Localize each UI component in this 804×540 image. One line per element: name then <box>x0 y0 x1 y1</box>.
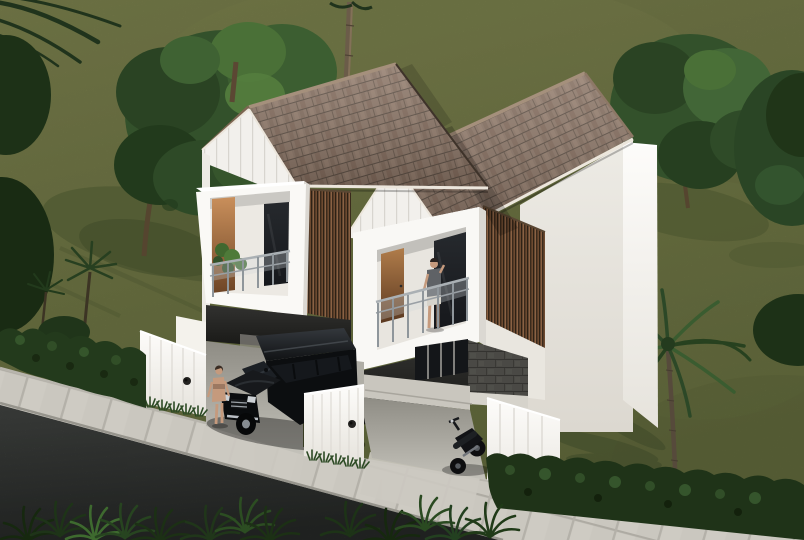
left-balcony <box>196 181 310 318</box>
render-image <box>0 0 804 540</box>
right-house-end-wall <box>623 143 658 428</box>
center-gate-wall <box>304 385 369 468</box>
suv-grille <box>231 399 247 409</box>
render-viewport <box>0 0 804 540</box>
